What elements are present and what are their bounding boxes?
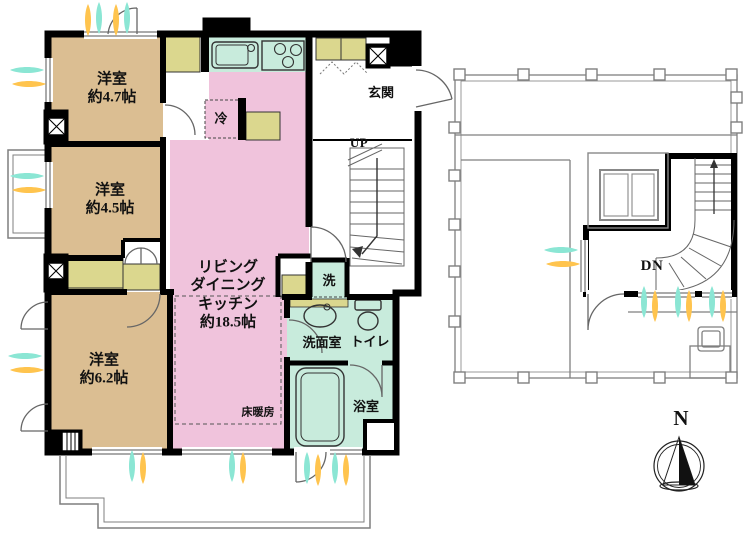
bedroom2-name: 洋室	[86, 182, 135, 200]
vanity-counter	[290, 299, 348, 307]
stairs-down-label: DN	[641, 257, 664, 275]
compass-icon	[654, 437, 704, 491]
ldk-line2: ダイニング	[190, 277, 265, 295]
bedroom1-size: 約4.7帖	[88, 89, 137, 107]
ldk-label: リビング ダイニング キッチン 約18.5帖	[190, 258, 265, 331]
bedroom2-label: 洋室 約4.5帖	[86, 182, 135, 219]
floor-plan-page: 洋室 約4.7帖 洋室 約4.5帖 洋室 約6.2帖 リビング ダイニング キッ…	[0, 0, 750, 536]
casement-window-arc	[21, 302, 48, 329]
floor-heating-label: 床暖房	[242, 406, 275, 419]
toilet-label: トイレ	[350, 334, 389, 350]
shoe-cabinet-doors	[320, 62, 368, 74]
bathroom-label: 浴室	[353, 399, 379, 415]
entrance-label: 玄関	[368, 85, 394, 101]
closet-double-door	[125, 248, 157, 264]
ldk-line3: キッチン	[190, 295, 265, 313]
closet-strip	[66, 258, 123, 290]
bedroom1-label: 洋室 約4.7帖	[88, 71, 137, 108]
closet-bedroom2	[123, 264, 160, 290]
compass-north-label: N	[673, 406, 688, 432]
wall-notch	[365, 421, 396, 452]
closet-bedroom1	[163, 34, 200, 72]
kitchen-cabinet	[246, 112, 280, 140]
bedroom3-label: 洋室 約6.2帖	[80, 352, 129, 389]
laundry-label: 洗	[322, 273, 335, 289]
washroom-label: 洗面室	[302, 335, 341, 351]
bedroom3-name: 洋室	[80, 352, 129, 370]
bedroom1-name: 洋室	[88, 71, 137, 89]
ldk-line1: リビング	[190, 258, 265, 276]
ldk-line4: 約18.5帖	[190, 313, 265, 331]
bedroom3-size: 約6.2帖	[80, 370, 129, 388]
roof-window	[588, 153, 668, 228]
hall-door	[311, 227, 346, 262]
fridge-label: 冷	[214, 111, 227, 127]
bedroom2-size: 約4.5帖	[86, 200, 135, 218]
casement-window-arc	[21, 404, 48, 431]
bedroom1-door	[165, 105, 195, 135]
penthouse-door	[588, 294, 624, 330]
stairs-up-label: UP	[350, 135, 368, 151]
stairs-up	[348, 144, 404, 266]
